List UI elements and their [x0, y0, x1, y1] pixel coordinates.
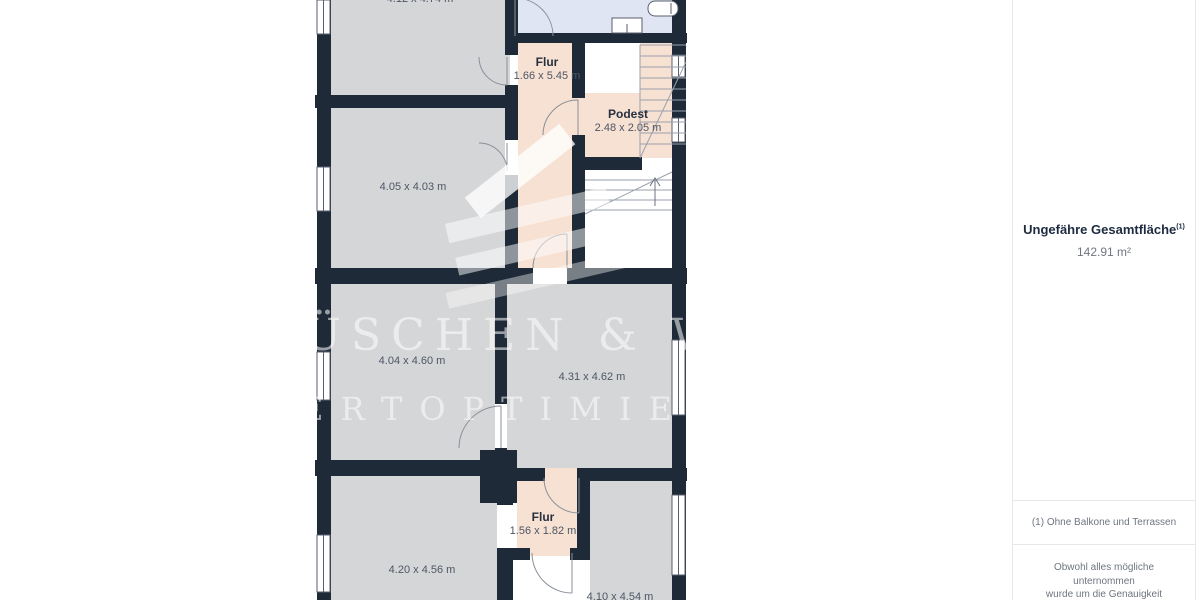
sink-icon [648, 1, 678, 16]
room-name-label: Flur [532, 510, 555, 524]
plan-linework [315, 0, 687, 600]
footnote-marker: (1) [1176, 223, 1185, 230]
footnote-section: (1) Ohne Balkone und Terrassen [1013, 501, 1195, 545]
floor-plan: 4.12 x 4.74 m Flur 1.66 x 5.45 m Podest … [315, 0, 687, 600]
room-dim-label: 1.56 x 1.82 m [510, 525, 577, 537]
total-area-label: Ungefähre Gesamtfläche [1023, 222, 1176, 237]
room-name-label: Podest [608, 107, 648, 121]
floorplan-page: 4.12 x 4.74 m Flur 1.66 x 5.45 m Podest … [0, 0, 1200, 600]
door-arcs [459, 0, 579, 593]
room-dim-label: 4.04 x 4.60 m [379, 355, 446, 367]
stairs-lower [585, 172, 672, 214]
total-area-value: 142.91 m² [1077, 245, 1131, 259]
room-dim-label: 2.48 x 2.05 m [595, 122, 662, 134]
room-dim-label: 1.66 x 5.45 m [514, 70, 581, 82]
total-area-title: Ungefähre Gesamtfläche(1) [1023, 222, 1185, 237]
room-dim-label: 4.10 x 4.54 m [587, 591, 654, 600]
room-dim-label: 4.20 x 4.56 m [389, 564, 456, 576]
room-name-label: Flur [536, 55, 559, 69]
total-area-section: Ungefähre Gesamtfläche(1) 142.91 m² [1013, 0, 1195, 501]
disclaimer-line: wurde um die Genauigkeit [1026, 588, 1182, 600]
room-dim-label: 4.05 x 4.03 m [380, 181, 447, 193]
summary-sidebar: Ungefähre Gesamtfläche(1) 142.91 m² (1) … [1012, 0, 1196, 600]
bathroom-fixtures [612, 1, 678, 33]
disclaimer-line: Obwohl alles mögliche unternommen [1026, 561, 1182, 588]
windows [317, 0, 685, 592]
disclaimer-section: Obwohl alles mögliche unternommen wurde … [1013, 545, 1195, 600]
room-dim-label: 4.31 x 4.62 m [559, 371, 626, 383]
room-dim-label: 4.12 x 4.74 m [387, 0, 454, 5]
